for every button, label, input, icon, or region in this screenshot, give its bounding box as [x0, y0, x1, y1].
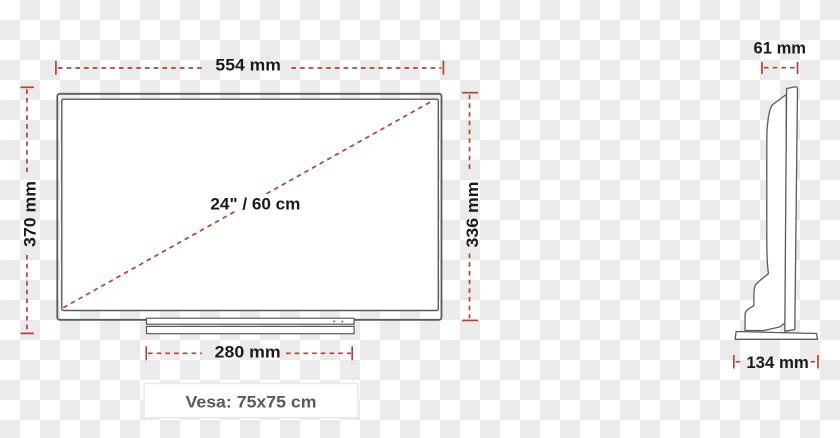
svg-text:24" / 60 cm: 24" / 60 cm: [210, 195, 300, 214]
svg-text:370 mm: 370 mm: [21, 181, 40, 247]
svg-text:134 mm: 134 mm: [746, 353, 809, 372]
svg-text:554 mm: 554 mm: [215, 55, 281, 74]
svg-text:280 mm: 280 mm: [215, 342, 281, 361]
svg-text:61 mm: 61 mm: [754, 39, 807, 58]
svg-text:336 mm: 336 mm: [463, 182, 482, 248]
svg-text:Vesa: 75x75 cm: Vesa: 75x75 cm: [186, 393, 317, 412]
